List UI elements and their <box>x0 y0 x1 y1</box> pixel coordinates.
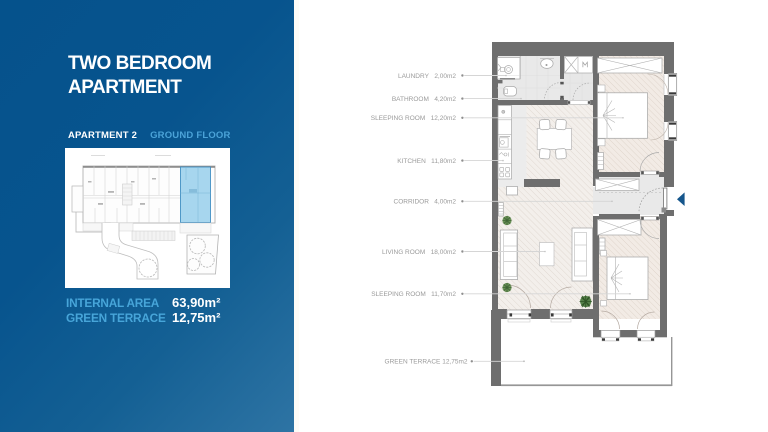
svg-text:KITCHEN 11,80m2: KITCHEN 11,80m2 <box>397 158 456 165</box>
svg-text:GREEN TERRACE 12,75m2: GREEN TERRACE 12,75m2 <box>385 358 468 365</box>
svg-text:BATHROOM 4,20m2: BATHROOM 4,20m2 <box>392 96 457 103</box>
svg-text:SLEEPING ROOM 12,20m2: SLEEPING ROOM 12,20m2 <box>371 115 457 122</box>
svg-text:CORRIDOR 4,00m2: CORRIDOR 4,00m2 <box>394 199 457 206</box>
svg-text:LAUNDRY 2,00m2: LAUNDRY 2,00m2 <box>398 73 456 80</box>
svg-text:LIVING ROOM 18,00m2: LIVING ROOM 18,00m2 <box>382 249 456 256</box>
svg-text:SLEEPING ROOM 11,70m2: SLEEPING ROOM 11,70m2 <box>371 291 456 298</box>
